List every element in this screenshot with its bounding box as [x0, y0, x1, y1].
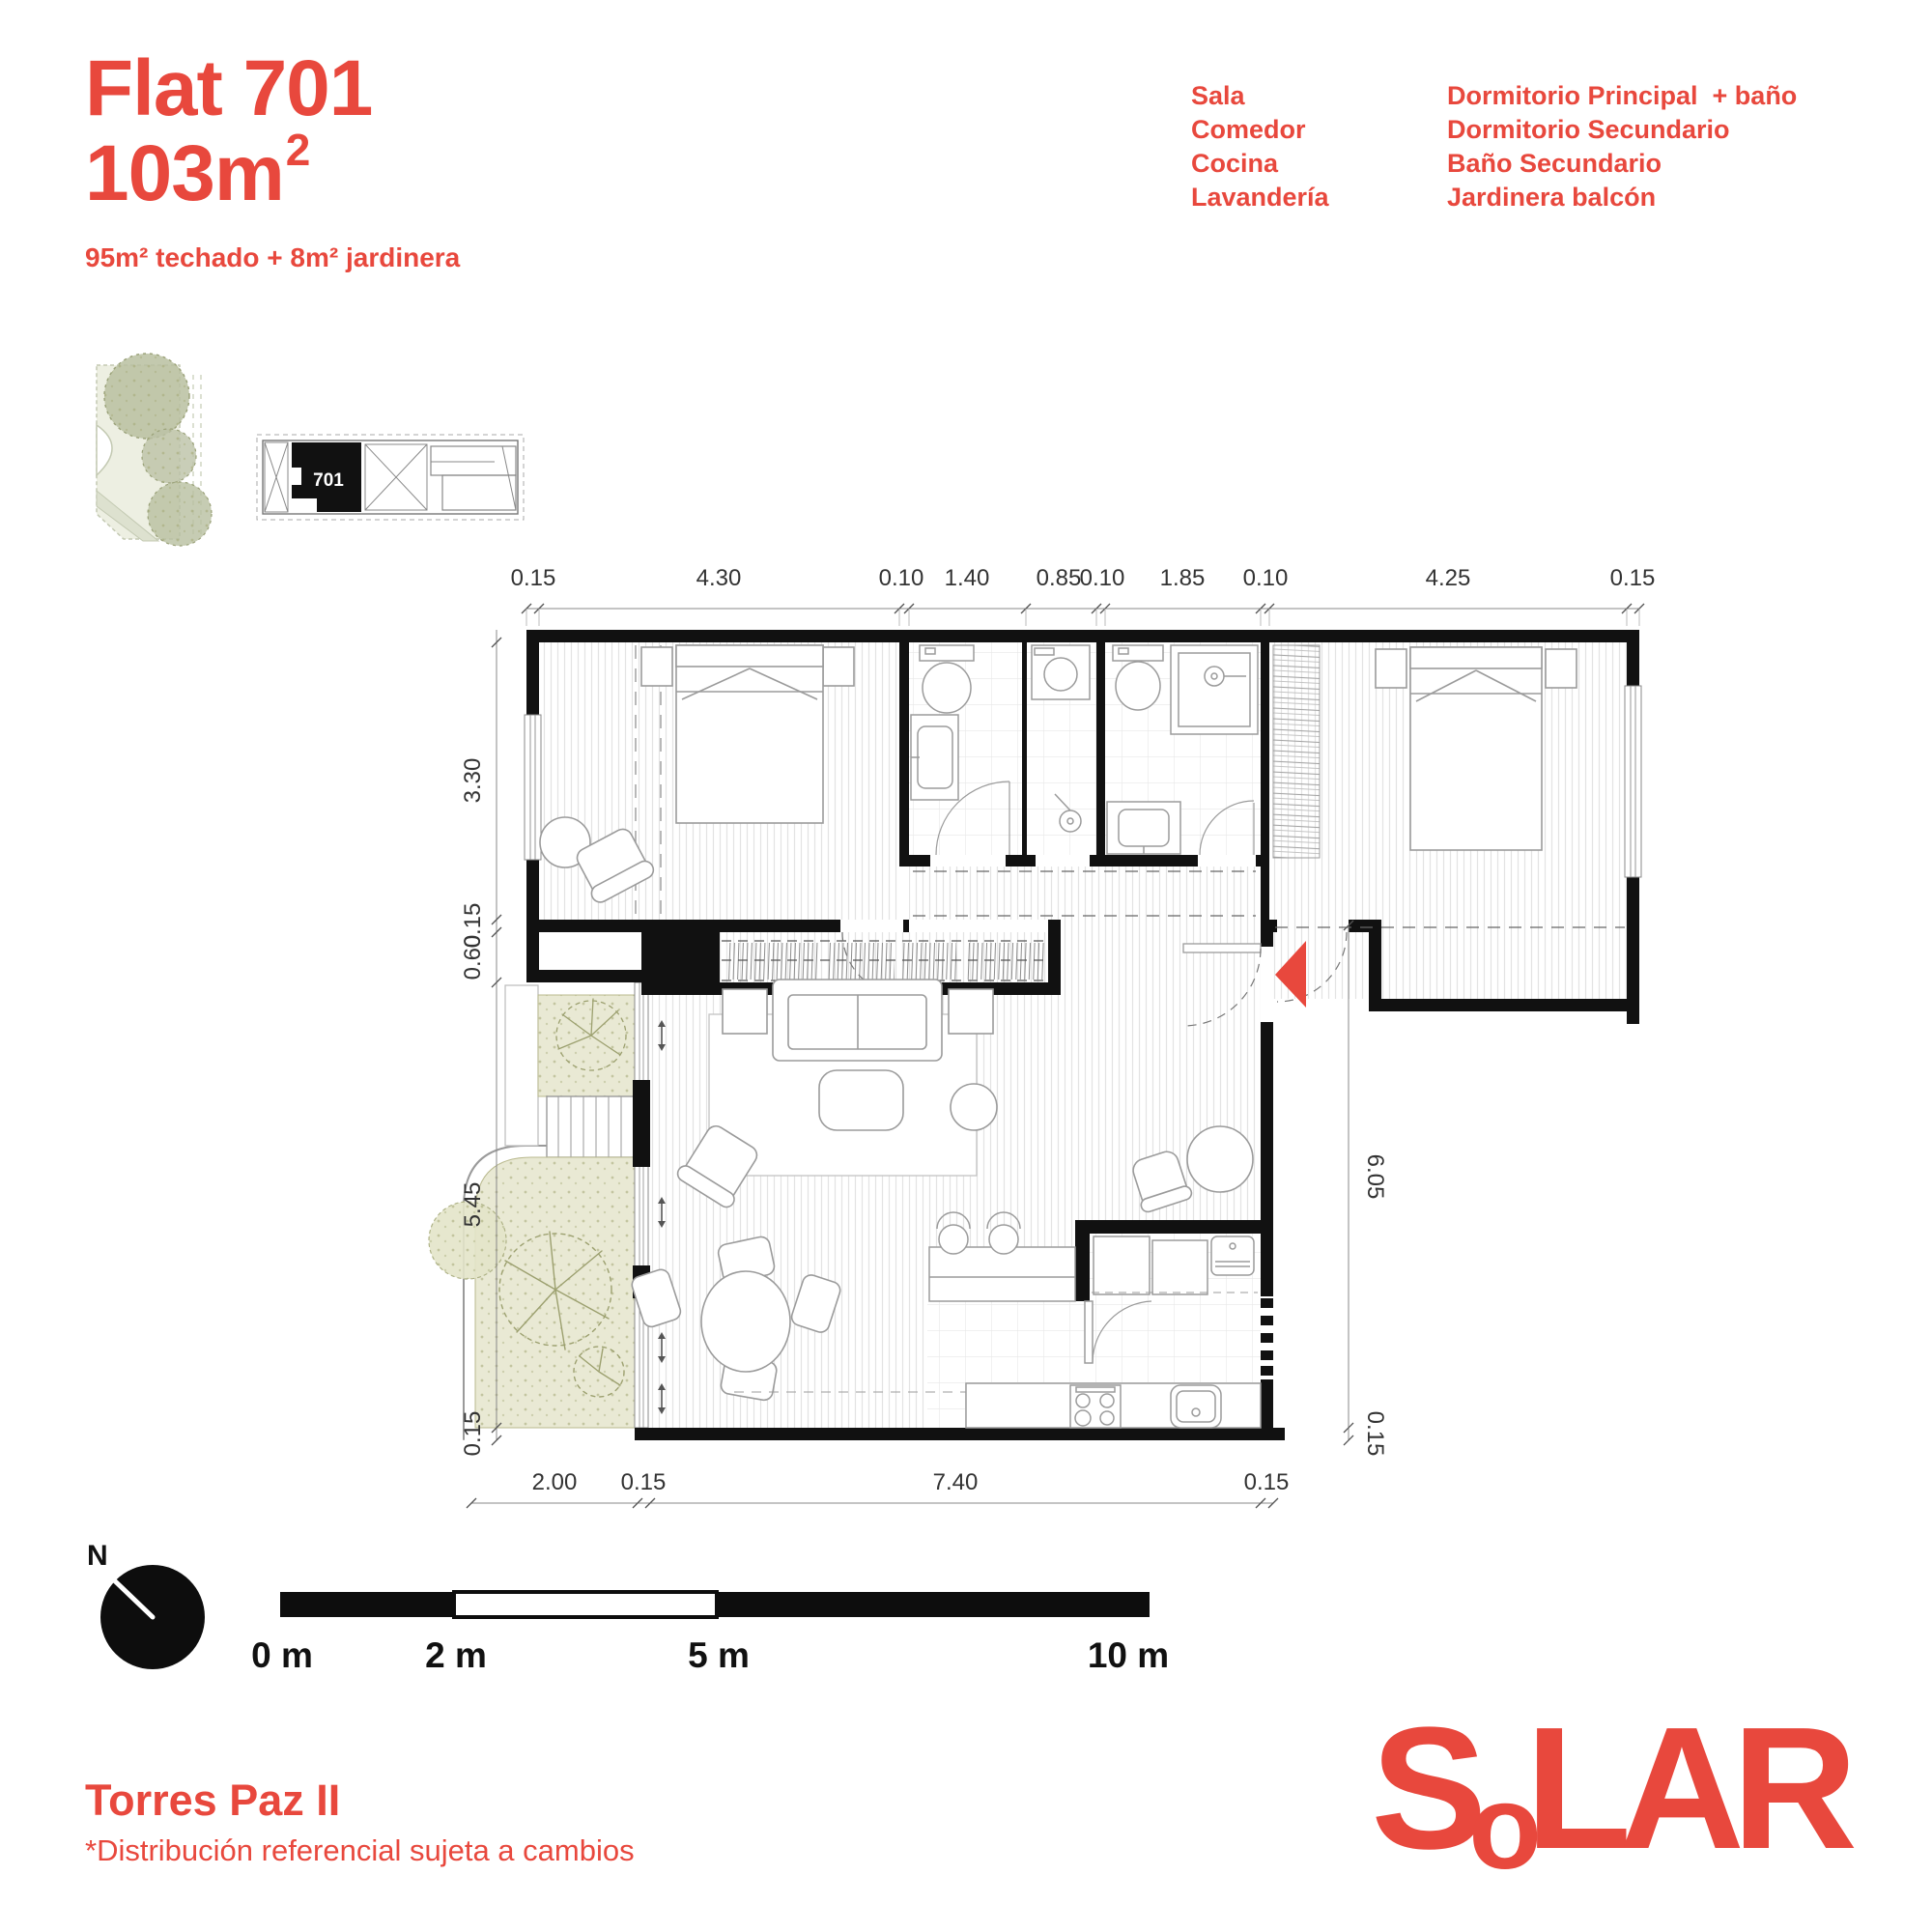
bed-double	[1410, 647, 1542, 850]
room-label: Dormitorio Secundario	[1447, 113, 1797, 147]
svg-text:3.30: 3.30	[460, 758, 486, 804]
svg-text:0.15: 0.15	[621, 1469, 667, 1495]
logo-letter: A	[1619, 1718, 1732, 1861]
unit-701-label: 701	[313, 470, 344, 491]
logo-letter: R	[1732, 1718, 1845, 1861]
project-name: Torres Paz II	[85, 1776, 635, 1826]
sofa	[773, 980, 942, 1061]
dining-table	[701, 1271, 790, 1372]
nightstand	[1546, 649, 1577, 688]
wardrobe-hangers	[722, 941, 1046, 980]
north-arrow-icon: N	[87, 1540, 205, 1669]
svg-text:0.15: 0.15	[1362, 1411, 1388, 1457]
coffee-table	[819, 1070, 903, 1130]
floor-plan-canvas: 701	[0, 0, 1932, 1932]
toilet-icon	[920, 645, 974, 713]
area-superscript: 2	[286, 125, 310, 175]
sink-vanity-icon	[911, 715, 958, 800]
shower-icon	[1171, 645, 1258, 734]
pouf	[951, 1084, 997, 1130]
svg-text:10 m: 10 m	[1088, 1635, 1169, 1675]
side-table	[949, 989, 993, 1034]
svg-text:4.30: 4.30	[696, 565, 742, 591]
svg-text:4.25: 4.25	[1426, 565, 1471, 591]
area-breakdown: 95m² techado + 8m² jardinera	[85, 242, 460, 273]
bedroom2-window	[1625, 686, 1641, 877]
svg-text:0.15: 0.15	[511, 565, 556, 591]
svg-text:0.10: 0.10	[1243, 565, 1289, 591]
flat-floorplan-page: { "header": { "title": "Flat 701", "area…	[0, 0, 1932, 1932]
stove-icon	[1070, 1385, 1121, 1428]
entry-door-leaf	[1183, 944, 1261, 952]
nightstand	[1376, 649, 1406, 688]
room-label: Baño Secundario	[1447, 147, 1797, 181]
svg-text:0.15: 0.15	[460, 1411, 486, 1457]
bedroom1-window	[525, 715, 541, 860]
title-block: Flat 701 103m2 95m² techado + 8m² jardin…	[85, 46, 460, 273]
appliance	[1152, 1240, 1207, 1294]
disclaimer: *Distribución referencial sujeta a cambi…	[85, 1833, 635, 1868]
toilet-icon	[1113, 645, 1163, 710]
logo-letter: L	[1525, 1718, 1619, 1861]
svg-text:0.15: 0.15	[1610, 565, 1656, 591]
sink-vanity-icon	[1107, 802, 1180, 854]
svg-text:5 m: 5 m	[688, 1635, 750, 1675]
bedroom-secondary	[1273, 645, 1577, 858]
room-list-left: Sala Comedor Cocina Lavandería	[1191, 79, 1329, 214]
room-label: Sala	[1191, 79, 1329, 113]
room-list-right: Dormitorio Principal + baño Dormitorio S…	[1447, 79, 1797, 214]
svg-text:0.10: 0.10	[879, 565, 924, 591]
stairs	[547, 1096, 635, 1157]
solar-logo: SoLAR	[1371, 1718, 1845, 1861]
closet	[1273, 645, 1320, 858]
nightstand	[823, 647, 854, 686]
logo-letter: S	[1371, 1718, 1474, 1861]
thumb-key-plan: 701	[257, 435, 524, 520]
washer-icon	[1032, 645, 1090, 699]
nightstand	[641, 647, 672, 686]
room-label: Cocina	[1191, 147, 1329, 181]
kitchen-sink2-icon	[1171, 1385, 1221, 1428]
svg-text:2.00: 2.00	[532, 1469, 578, 1495]
svg-text:6.05: 6.05	[1362, 1154, 1388, 1200]
room-label: Jardinera balcón	[1447, 181, 1797, 214]
svg-text:0.60: 0.60	[460, 935, 486, 980]
svg-text:0.85: 0.85	[1037, 565, 1082, 591]
bar-counter	[929, 1247, 1075, 1301]
dim-top: 0.15 4.30 0.10 1.40 0.85 0.10 1.85 0.10 …	[511, 565, 1656, 626]
svg-text:5.45: 5.45	[460, 1182, 486, 1228]
thumb-site-plan	[97, 354, 212, 546]
dim-bottom: 2.00 0.15 7.40 0.15	[467, 1469, 1289, 1508]
svg-text:1.40: 1.40	[945, 565, 990, 591]
footer-block: Torres Paz II *Distribución referencial …	[85, 1776, 635, 1868]
page-title: Flat 701 103m2	[85, 46, 460, 227]
scale-bar: 0 m 2 m 5 m 10 m	[251, 1592, 1169, 1675]
kitchen-sink-icon	[1211, 1236, 1254, 1275]
svg-text:0 m: 0 m	[251, 1635, 313, 1675]
round-table	[1187, 1126, 1253, 1192]
svg-text:0.15: 0.15	[1244, 1469, 1290, 1495]
north-label: N	[87, 1540, 108, 1572]
room-label: Comedor	[1191, 113, 1329, 147]
bed-double	[676, 645, 823, 823]
room-label: Dormitorio Principal + baño	[1447, 79, 1797, 113]
svg-text:1.85: 1.85	[1160, 565, 1206, 591]
logo-letter: o	[1468, 1779, 1529, 1878]
svg-text:7.40: 7.40	[933, 1469, 979, 1495]
room-label: Lavandería	[1191, 181, 1329, 214]
area-value: 103m	[85, 129, 284, 217]
svg-text:0.10: 0.10	[1080, 565, 1125, 591]
side-table	[723, 989, 767, 1034]
fridge	[1094, 1236, 1150, 1294]
svg-text:2 m: 2 m	[425, 1635, 487, 1675]
